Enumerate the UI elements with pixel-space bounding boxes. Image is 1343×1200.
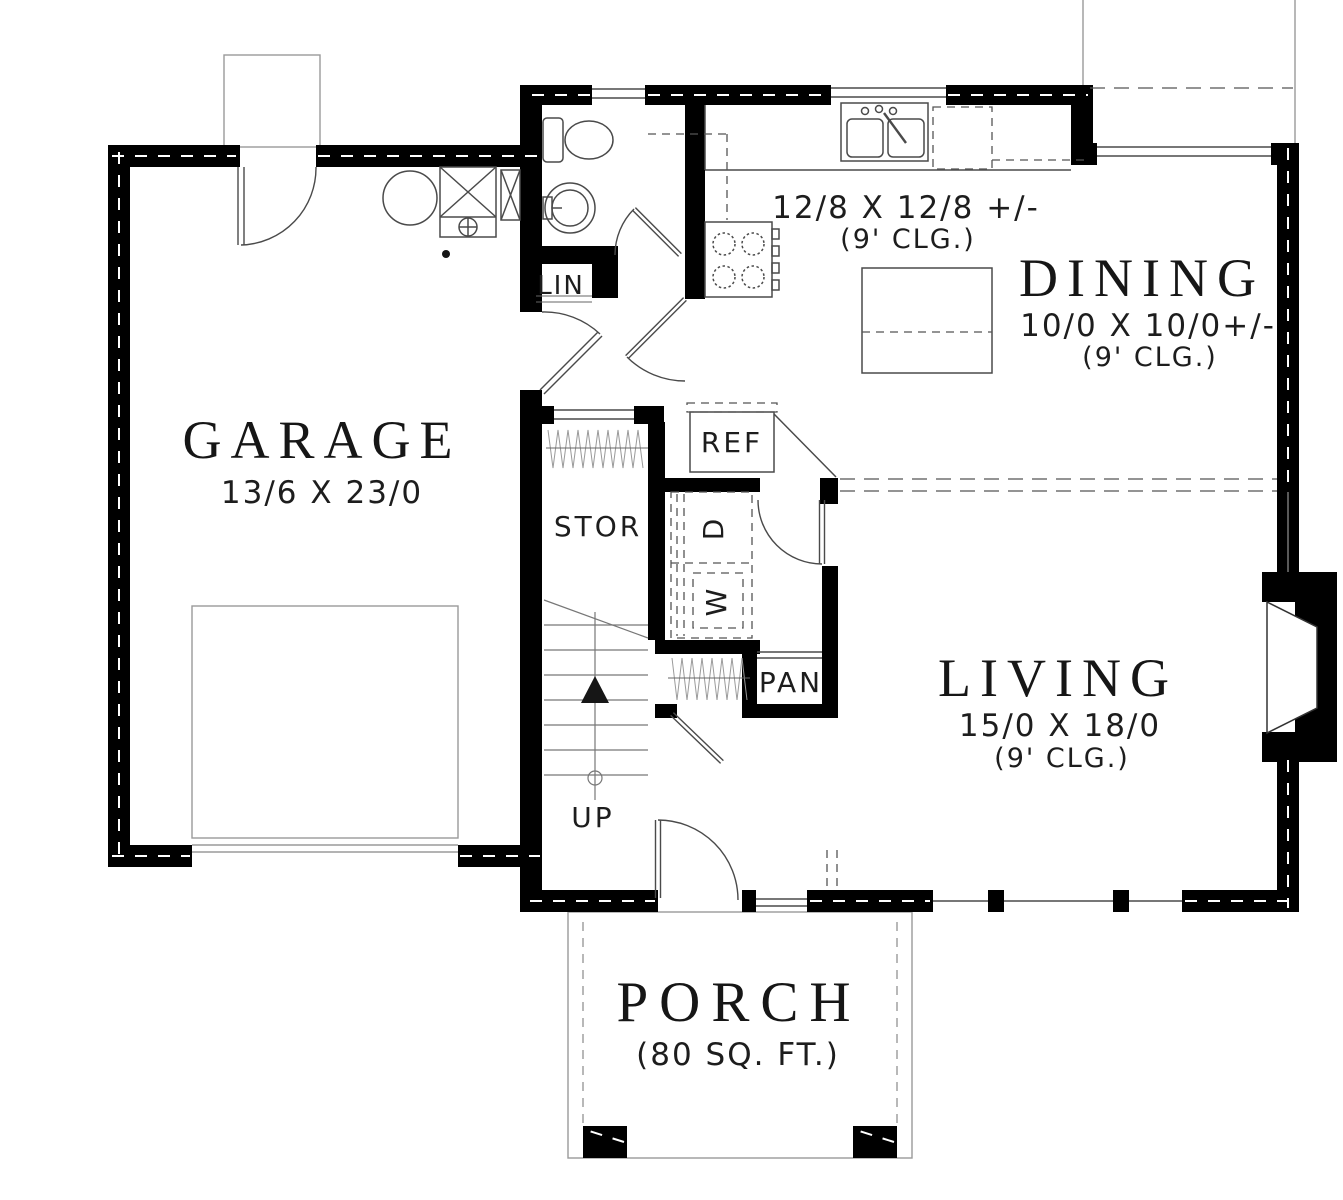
floor-plan-page: GARAGE 13/6 X 23/0 12/8 X 12/8 +/- (9' C… bbox=[0, 0, 1343, 1200]
water-heater bbox=[383, 171, 437, 225]
bath-window bbox=[592, 89, 645, 98]
up-arrow bbox=[581, 676, 609, 703]
kitchen-sink-window bbox=[831, 88, 946, 97]
garage-label: GARAGE bbox=[183, 410, 462, 470]
fireplace-stub-top bbox=[1262, 572, 1302, 602]
front-door bbox=[656, 820, 739, 900]
kitchen-ceiling: (9' CLG.) bbox=[840, 224, 976, 255]
storage-opening bbox=[554, 410, 634, 419]
dryer-label: D bbox=[697, 516, 730, 541]
storage-hangers bbox=[548, 430, 643, 468]
dining-window bbox=[1097, 147, 1271, 156]
porch-area: (80 SQ. FT.) bbox=[636, 1037, 840, 1073]
linen-label: LIN bbox=[537, 271, 585, 301]
entry-stoop bbox=[224, 55, 320, 147]
bath-door bbox=[615, 208, 681, 257]
refrigerator-label: REF bbox=[701, 426, 763, 459]
floor-drain bbox=[442, 250, 450, 258]
toilet-bowl bbox=[565, 121, 613, 159]
living-label: LIVING bbox=[938, 648, 1178, 708]
stairs bbox=[544, 600, 648, 800]
toilet-tank bbox=[543, 118, 563, 162]
coat-closet-hangers bbox=[672, 658, 747, 700]
dining-label: DINING bbox=[1019, 248, 1265, 308]
dining-dims: 10/0 X 10/0+/- bbox=[1020, 308, 1276, 344]
kitchen-island bbox=[862, 268, 992, 373]
laundry-door bbox=[758, 500, 825, 564]
garage-entry-door bbox=[540, 312, 602, 394]
upper-cabinet-over-ref bbox=[687, 403, 777, 412]
pantry-door bbox=[757, 652, 822, 658]
dining-living-header bbox=[840, 479, 1277, 491]
counter-angle bbox=[774, 414, 836, 477]
labels: GARAGE 13/6 X 23/0 12/8 X 12/8 +/- (9' C… bbox=[183, 190, 1276, 1073]
stairs-up-label: UP bbox=[571, 801, 614, 834]
garage-door-panel bbox=[192, 606, 458, 838]
coat-closet-door bbox=[671, 713, 724, 764]
porch-slab bbox=[568, 912, 912, 1158]
kitchen-sink bbox=[841, 103, 928, 161]
pantry-label: PAN bbox=[759, 666, 823, 699]
living-ceiling: (9' CLG.) bbox=[994, 743, 1130, 774]
fireplace-stub-bottom bbox=[1262, 732, 1302, 762]
dining-ceiling: (9' CLG.) bbox=[1082, 342, 1218, 373]
hall-kitchen-door bbox=[626, 298, 687, 381]
garage-side-door bbox=[238, 167, 316, 245]
range bbox=[705, 222, 779, 297]
kitchen-dims: 12/8 X 12/8 +/- bbox=[772, 190, 1040, 226]
upper-cabinet-right bbox=[933, 107, 992, 169]
floor-plan-drawing: GARAGE 13/6 X 23/0 12/8 X 12/8 +/- (9' C… bbox=[0, 0, 1343, 1200]
washer-label: W bbox=[700, 586, 733, 617]
living-dims: 15/0 X 18/0 bbox=[959, 708, 1161, 744]
closet-rods bbox=[536, 296, 750, 700]
front-sidelite bbox=[756, 899, 807, 906]
porch-post-left bbox=[583, 1126, 627, 1158]
porch-label: PORCH bbox=[616, 971, 861, 1034]
garage-dims: 13/6 X 23/0 bbox=[221, 475, 423, 511]
porch-post-right bbox=[853, 1126, 897, 1158]
storage-label: STOR bbox=[554, 510, 642, 543]
